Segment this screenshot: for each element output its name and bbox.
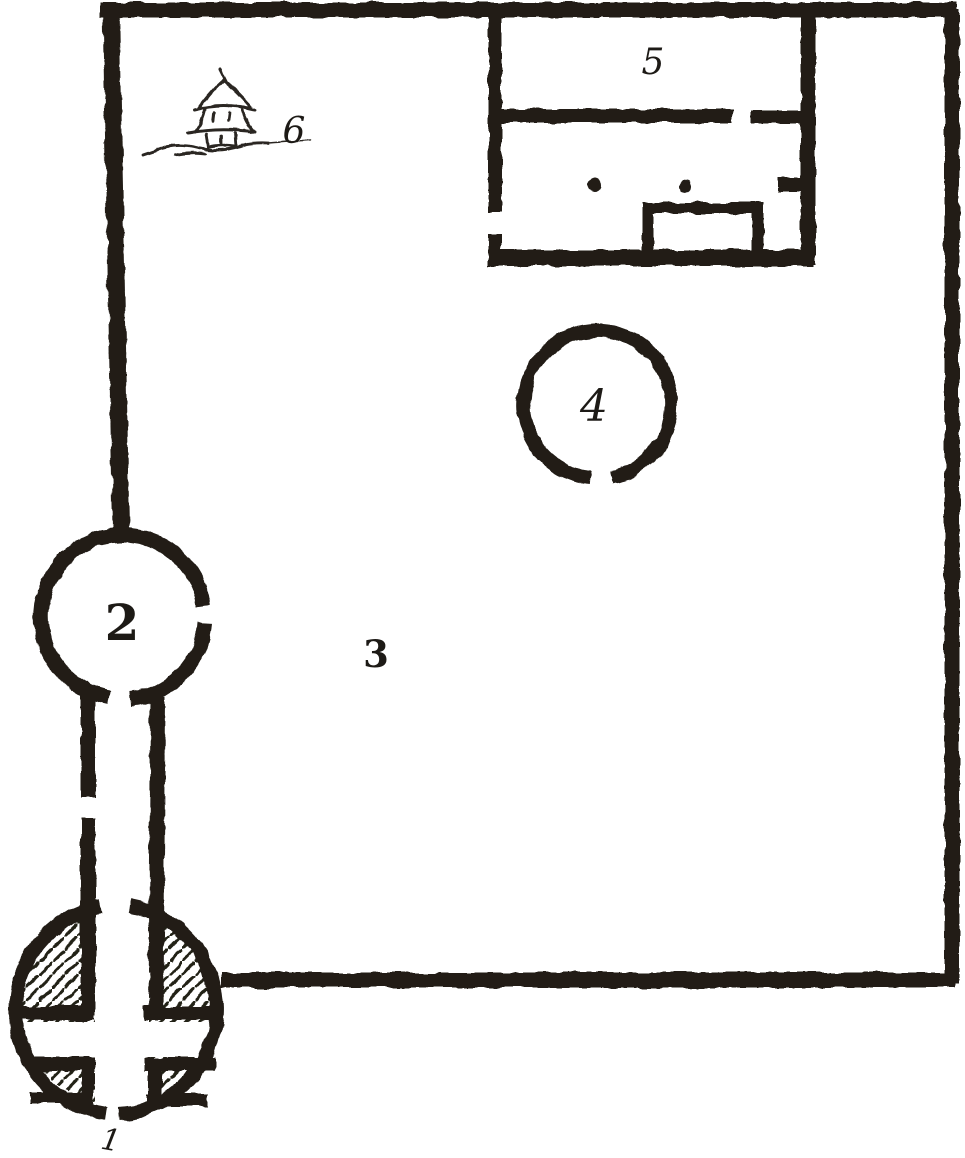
post-dot-1 xyxy=(587,178,601,192)
label-5: 5 xyxy=(642,42,665,83)
post-dot-2 xyxy=(680,180,692,192)
engraved-site-plan: 1 2 3 4 5 6 xyxy=(0,0,965,1158)
rotunda-passage-horizontal xyxy=(12,1022,214,1057)
tower2-ring-lower xyxy=(130,622,205,699)
plan-walls xyxy=(14,5,957,1114)
rotunda-passage-vertical xyxy=(95,896,149,1124)
corridor-wall-right xyxy=(156,697,158,1016)
tower-body-right xyxy=(242,110,253,131)
tower-body-left xyxy=(195,110,205,132)
label-4: 4 xyxy=(579,381,608,432)
site-plan-svg: 1 2 3 4 5 6 xyxy=(0,0,965,1158)
label-2: 2 xyxy=(105,593,140,652)
outer-wall-left xyxy=(111,5,121,530)
tower-roof xyxy=(199,80,251,108)
label-6: 6 xyxy=(283,111,306,152)
tower-skirt xyxy=(188,130,255,133)
building5-annex xyxy=(648,208,758,253)
tower-ground-line xyxy=(143,143,268,155)
label-3: 3 xyxy=(363,632,389,676)
label-1: 1 xyxy=(98,1122,123,1158)
tower-eave xyxy=(194,106,255,110)
tower-base xyxy=(206,133,236,148)
tower-windows xyxy=(213,112,230,121)
